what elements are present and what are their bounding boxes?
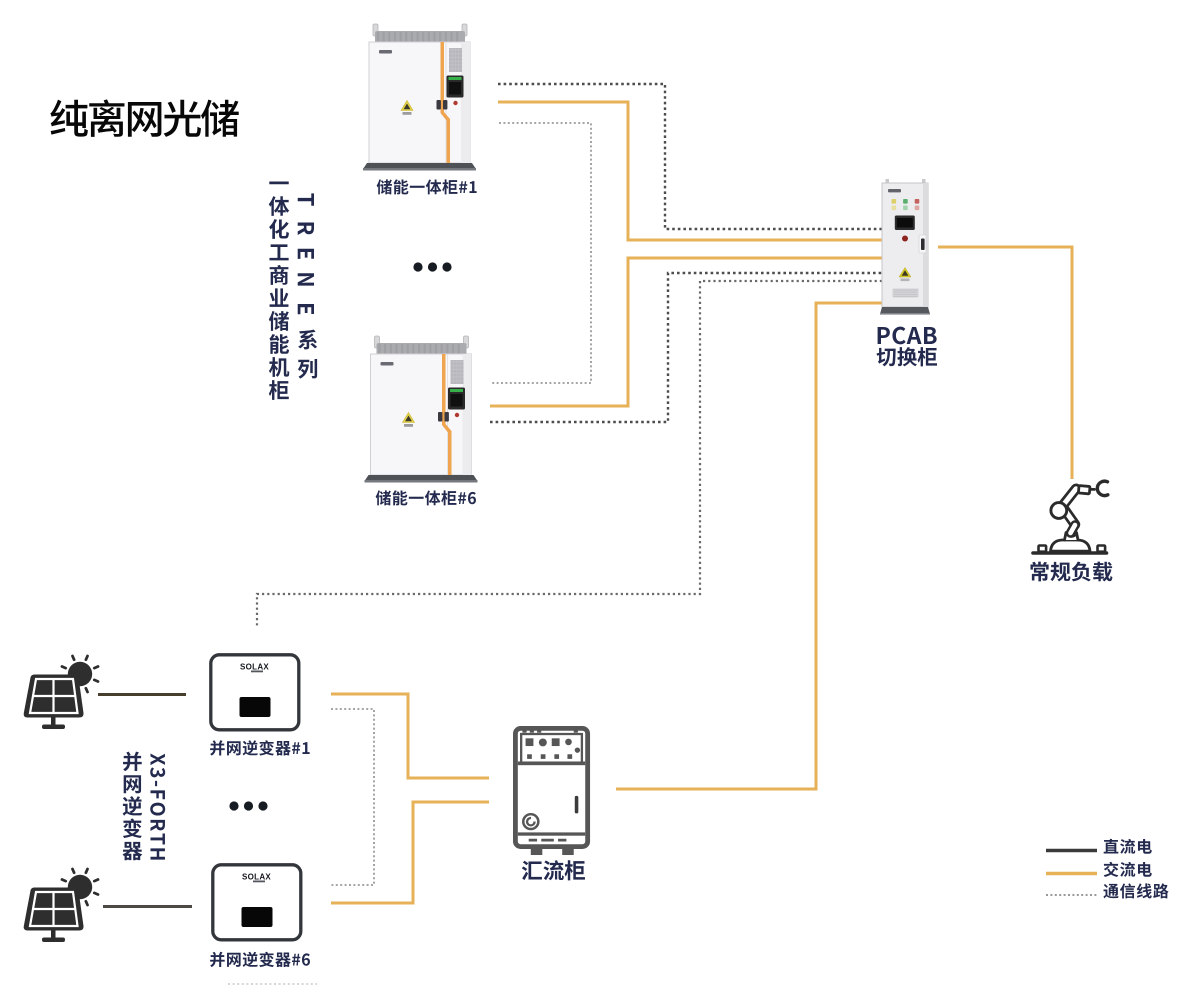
- svg-text:SOLAX: SOLAX: [240, 663, 269, 672]
